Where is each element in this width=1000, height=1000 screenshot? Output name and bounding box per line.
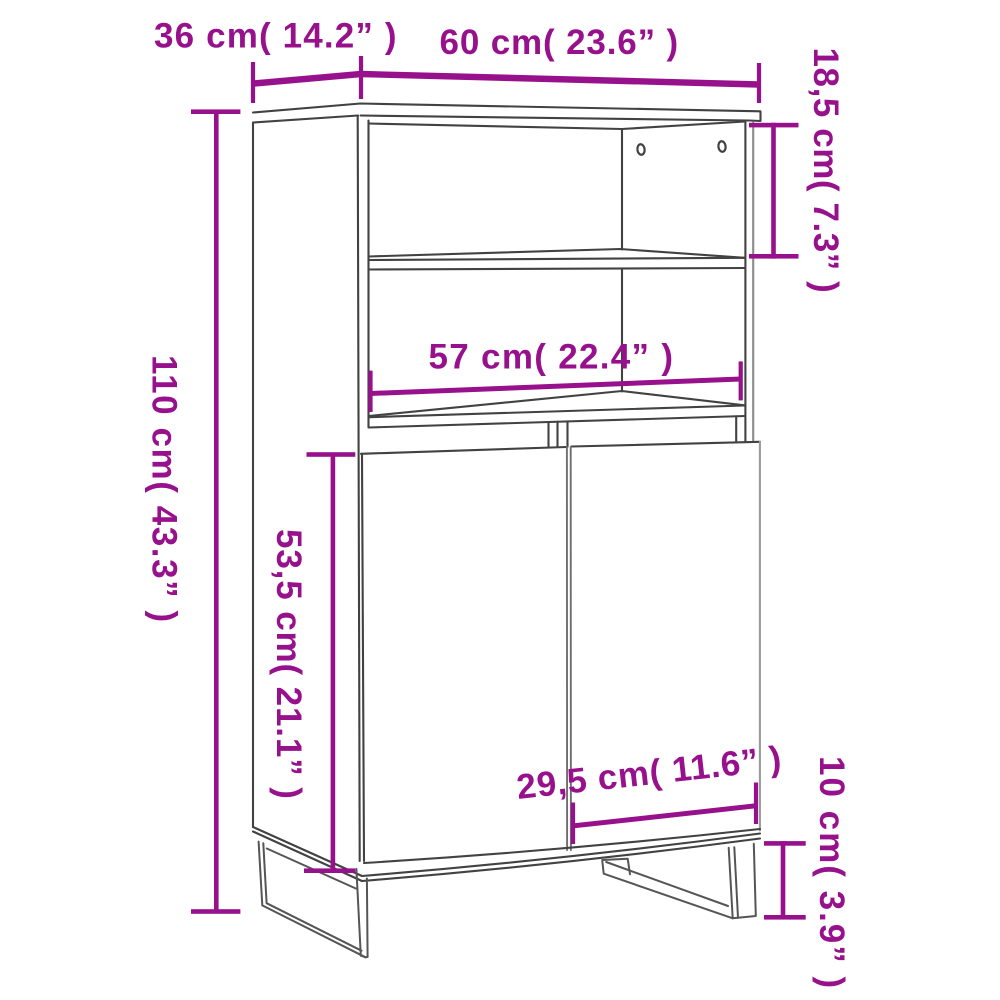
svg-text:36 cm( 14.2” ): 36 cm( 14.2” ) xyxy=(154,17,398,56)
svg-text:18,5 cm( 7.3” ): 18,5 cm( 7.3” ) xyxy=(806,48,845,294)
svg-text:110 cm( 43.3” ): 110 cm( 43.3” ) xyxy=(145,355,184,624)
svg-text:10 cm( 3.9” ): 10 cm( 3.9” ) xyxy=(812,756,851,990)
svg-text:57 cm( 22.4” ): 57 cm( 22.4” ) xyxy=(429,338,675,377)
svg-text:60 cm( 23.6” ): 60 cm( 23.6” ) xyxy=(440,23,680,62)
svg-text:53,5 cm( 21.1” ): 53,5 cm( 21.1” ) xyxy=(269,529,308,800)
svg-text:29,5 cm( 11.6” ): 29,5 cm( 11.6” ) xyxy=(515,739,784,807)
